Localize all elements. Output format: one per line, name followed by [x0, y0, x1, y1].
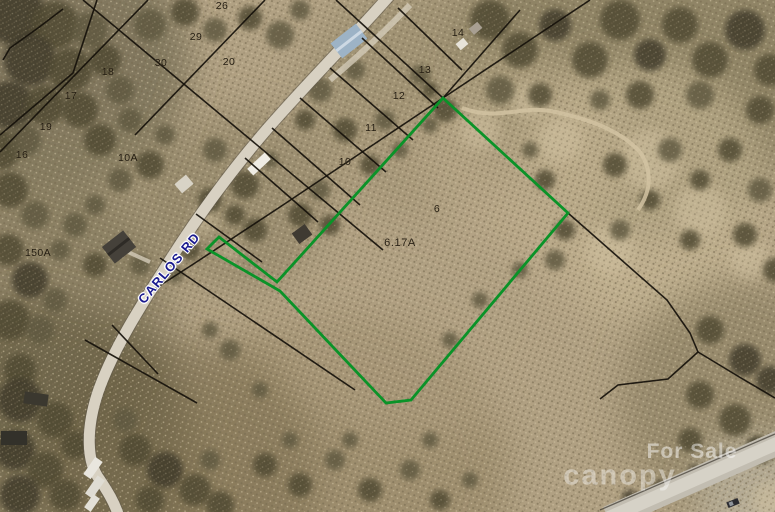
aerial-photo-layer — [0, 0, 775, 512]
aerial-parcel-map: CARLOS RD For Sale canopy 26293020181719… — [0, 0, 775, 512]
building-bottom-left-2 — [1, 431, 27, 445]
